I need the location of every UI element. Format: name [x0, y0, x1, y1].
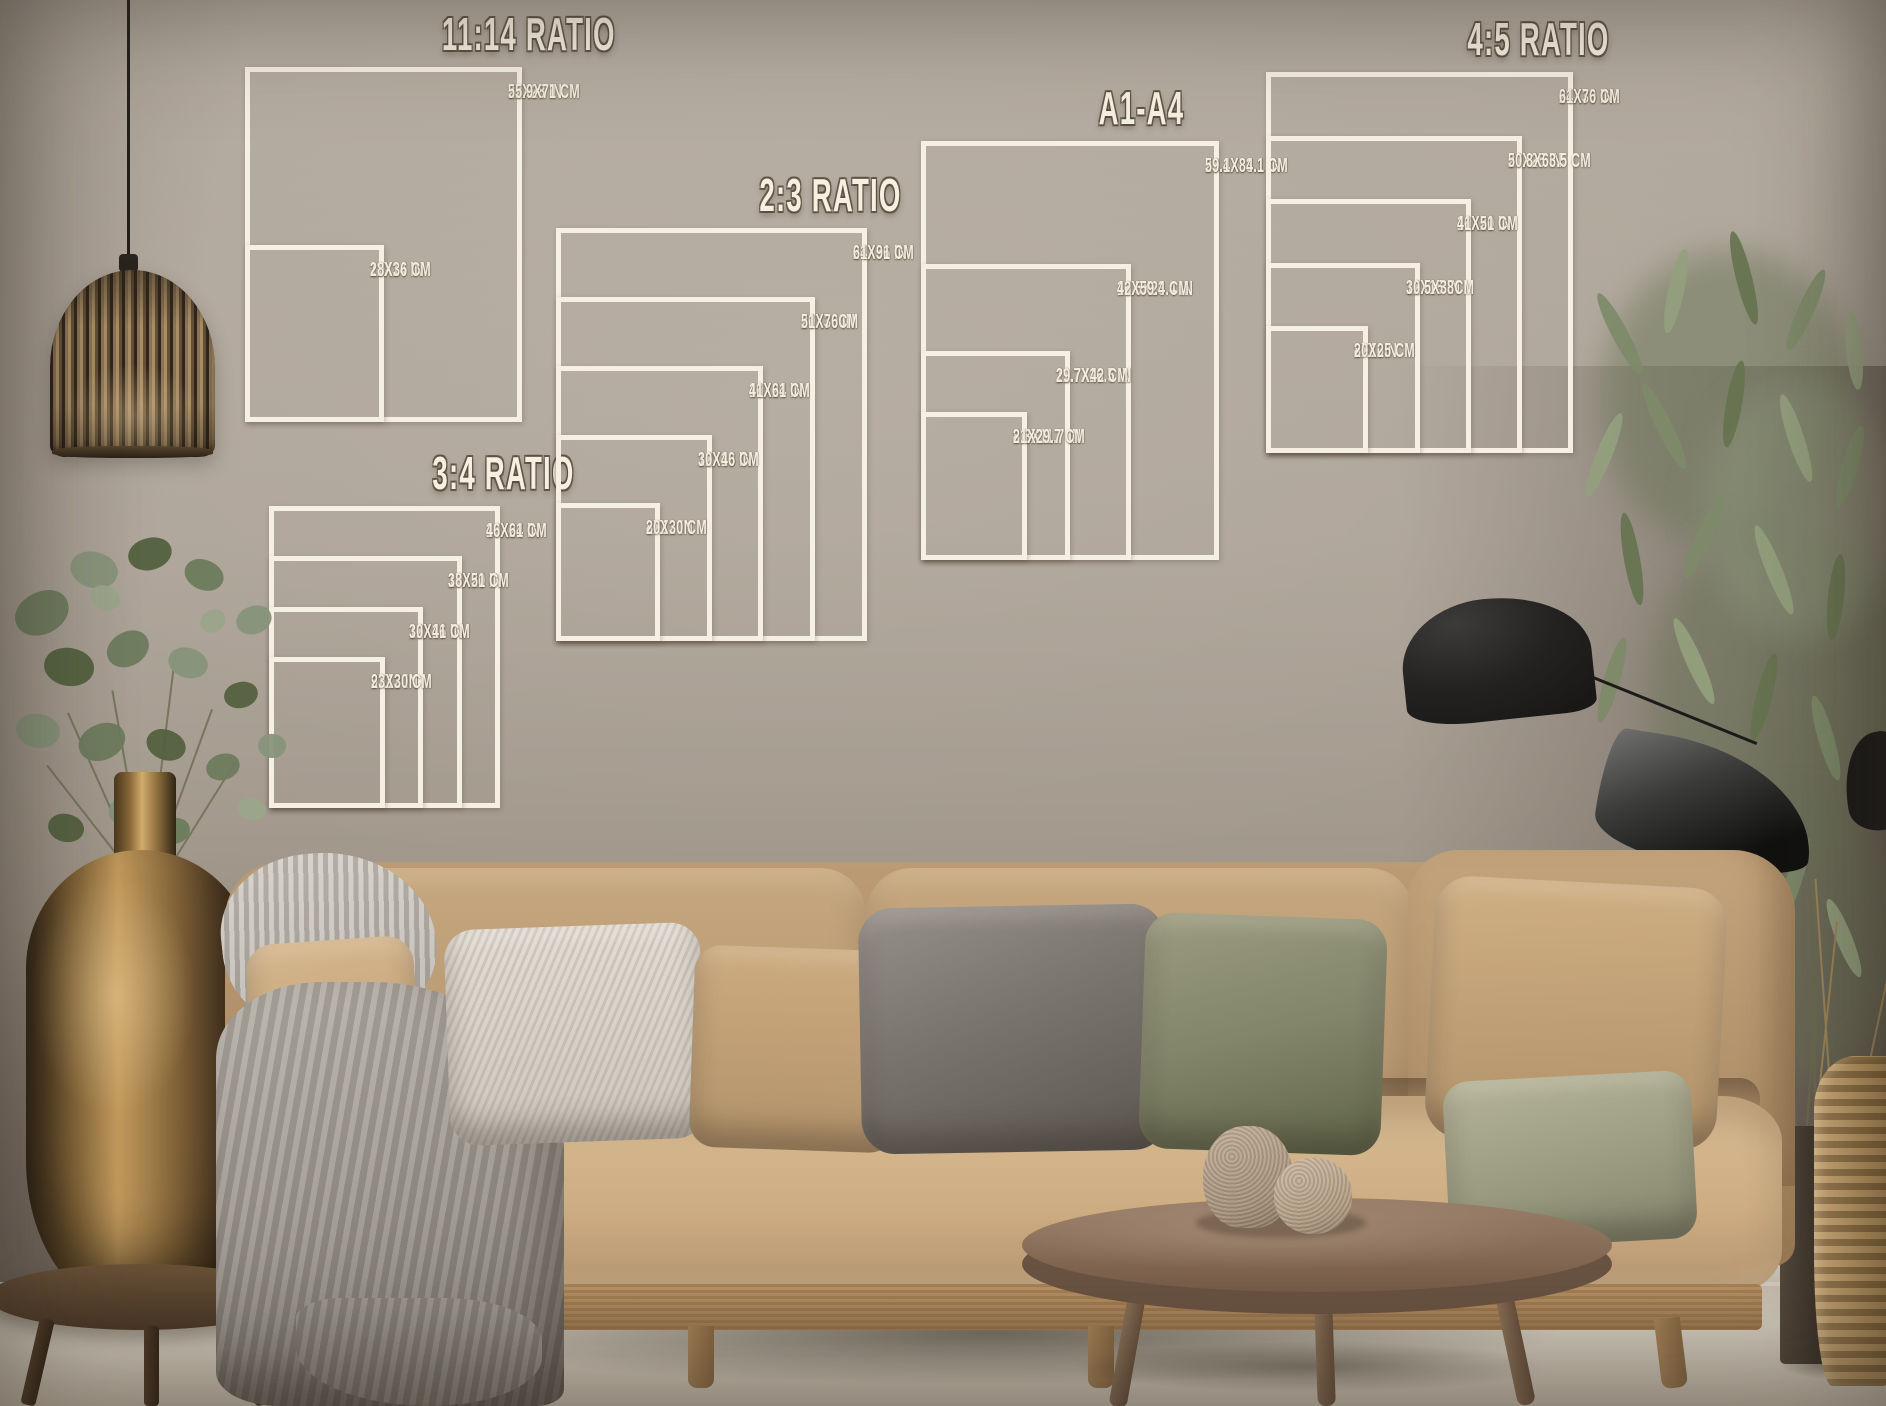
- size-rect-8x10in: 8X10IN20X25 CM: [1266, 326, 1368, 453]
- size-chart-4-5-ratio: 4:5 RATIO 24X30 IN61X76 CM20X25 IN50.8X6…: [1266, 72, 1573, 453]
- size-rect-11x14-in: 11X14 IN28X36 CM: [245, 245, 384, 423]
- size-rect-8.3x11.7-in: 8.3X11.7 IN21X29.7 CM: [921, 412, 1027, 560]
- sofa-leg: [688, 1326, 714, 1388]
- pendant-lamp-rim: [52, 446, 213, 458]
- living-room-scene: 11:14 RATIO 22X28 IN55.9X71 CM11X14 IN28…: [0, 0, 1886, 1406]
- pillow-textured-white: [443, 922, 706, 1147]
- stool-leg: [144, 1326, 159, 1406]
- pendant-lamp-shade: [50, 270, 215, 457]
- pillow-velvet-olive: [1138, 912, 1388, 1156]
- pendant-lamp-cord: [127, 0, 130, 268]
- size-chart-11-14-ratio: 11:14 RATIO 22X28 IN55.9X71 CM11X14 IN28…: [245, 67, 522, 422]
- size-chart-2-3-ratio: 2:3 RATIO 24X36 IN61X91 CM20X30 IN51X76C…: [556, 228, 867, 641]
- rattan-basket: [1814, 1056, 1886, 1386]
- size-rect-8x12-in: 8X12 IN20X30 CM: [556, 503, 660, 641]
- pillow-velvet-gray: [858, 903, 1168, 1154]
- ceramic-vase-small: [1274, 1158, 1352, 1234]
- size-chart-3-4-ratio: 3:4 RATIO 18X24 IN46X61 CM15X20 IN38X51 …: [269, 506, 500, 808]
- size-rect-9x12-in: 9X12 IN23X30 CM: [269, 657, 385, 808]
- coffee-table-leg: [1314, 1302, 1336, 1406]
- size-chart-a1-a4: A1-A4 23.4X33.1 IN59.1X84.1 CM16.5X23.4 …: [921, 141, 1219, 560]
- coffee-table-shadow: [980, 1332, 1640, 1402]
